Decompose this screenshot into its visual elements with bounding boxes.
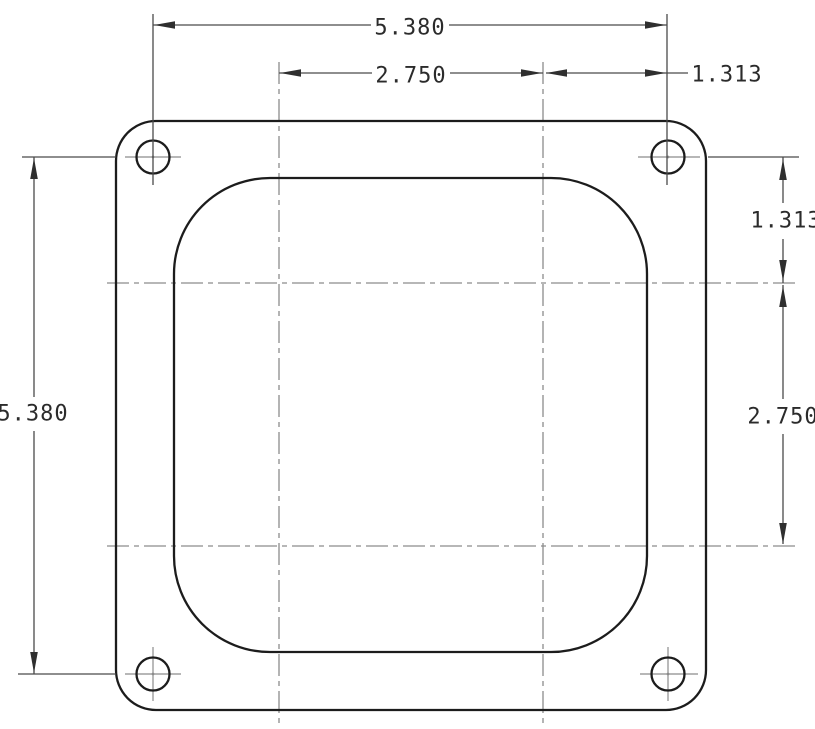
arrowhead-up [30,158,38,179]
arrowhead-right [645,21,666,29]
drawing-canvas: 5.380 2.750 1.313 5.380 1.313 2.750 [0,0,815,729]
arrowhead-left [546,69,567,77]
arrowhead-down [779,523,787,544]
centerlines [107,62,798,723]
dimension-label-right-bore-spacing: 2.750 [747,405,815,430]
dimension-right-edge-offset: 1.313 [750,157,815,283]
flange-geometry [116,121,706,710]
dimension-label-right-edge-offset: 1.313 [750,209,815,234]
arrowhead-right [521,69,542,77]
dimension-label-top-edge-offset: 1.313 [691,63,762,88]
arrowhead-down [779,260,787,281]
dimension-top-edge-offset: 1.313 [546,63,763,88]
arrowhead-right [645,69,666,77]
dimension-label-top-width: 5.380 [374,16,445,41]
hole-center-dot [667,673,670,676]
flange-outer-outline [116,121,706,710]
arrowhead-up [779,159,787,180]
extension-lines [18,14,799,674]
dimension-right-bore-spacing: 2.750 [747,285,815,544]
dimension-label-top-bore-spacing: 2.750 [375,64,446,89]
hole-crosshairs [125,156,700,701]
arrowhead-up [779,286,787,307]
arrowhead-left [154,21,175,29]
dimension-top-width: 5.380 [153,16,667,41]
arrowhead-left [280,69,301,77]
flange-opening-outline [174,178,647,652]
arrowhead-down [30,652,38,673]
dimension-left-height: 5.380 [0,157,69,674]
dimension-top-bore-spacing: 2.750 [279,64,543,89]
dimension-label-left-height: 5.380 [0,402,69,427]
flange-dimension-drawing: 5.380 2.750 1.313 5.380 1.313 2.750 [0,0,815,729]
hole-center-dot [152,673,155,676]
